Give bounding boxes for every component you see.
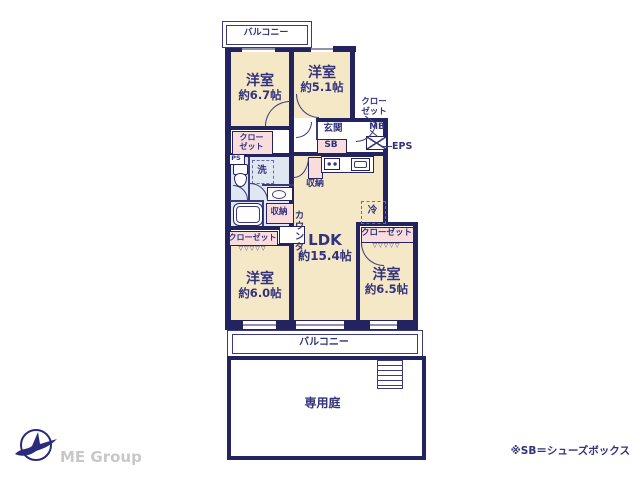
room-west-51-label: 洋室 約5.1帖: [294, 60, 350, 100]
bathtub-inner: [236, 206, 260, 223]
vanity-partition: [262, 184, 294, 186]
bathtub-icon: [233, 203, 263, 226]
shoe-box-label: SB: [317, 139, 345, 152]
garden-stairs: [377, 360, 403, 389]
room-west-65-name: 洋室: [373, 267, 401, 283]
kitchen-sink-icon: [351, 158, 370, 171]
room-west-67-label: 洋室 約6.7帖: [231, 68, 289, 108]
kitchen-sink-basin: [354, 161, 367, 168]
counter-label: カウンター: [290, 202, 304, 270]
room-west-60-name: 洋室: [246, 271, 274, 287]
storage-wet-label: 収納: [266, 203, 292, 222]
storage-hall-label: 収納: [300, 179, 330, 190]
window-top-51: [311, 46, 333, 52]
me-group-logo-svg: [12, 423, 60, 471]
balcony-top-label: バルコニー: [222, 21, 310, 46]
room-west-51-name: 洋室: [308, 65, 336, 81]
window-bottom-ldk: [296, 321, 344, 329]
me-group-text: ME Group: [60, 449, 152, 467]
closet-60-folding-door: ▽▽▽▽▽: [229, 246, 276, 252]
room-west-67-name: 洋室: [246, 73, 274, 89]
window-bottom-65: [370, 321, 397, 329]
wall-below-67: [225, 126, 294, 130]
meter-box-label: MB: [366, 122, 388, 133]
vanity-sink-icon: [267, 187, 293, 201]
room-ldk-name: LDK: [308, 232, 342, 249]
fridge-label: 冷: [361, 201, 384, 222]
closet-67-line1: クロー: [240, 133, 264, 142]
closet-67-line2: ゼット: [240, 142, 264, 151]
pipe-space-label: PS: [229, 154, 243, 163]
eps-label: EPS: [392, 141, 420, 153]
room-west-60-size: 約6.0帖: [238, 287, 281, 300]
washer-label: 洗: [252, 160, 272, 182]
room-west-65-size: 約6.5帖: [365, 283, 408, 296]
meter-box: [366, 136, 387, 150]
room-west-51-size: 約5.1帖: [300, 81, 343, 94]
room-west-60-label: 洋室 約6.0帖: [231, 266, 289, 306]
wall-right-upper: [350, 46, 355, 122]
room-west-67-size: 約6.7帖: [238, 89, 281, 102]
genkan-label: 玄関: [316, 124, 350, 135]
vanity-basin: [272, 190, 286, 199]
closet-65-label: クローゼット: [361, 227, 412, 241]
room-west-65-label: 洋室 約6.5帖: [360, 262, 413, 302]
eps-pointer: [383, 146, 392, 147]
closet-60-label: クローゼット: [229, 231, 276, 244]
balcony-bottom-label: バルコニー: [227, 330, 421, 356]
sb-note: ※SB＝シューズボックス: [440, 444, 630, 458]
me-group-logo: [12, 423, 60, 471]
window-bottom-60: [243, 321, 276, 329]
room-ldk-size: 約15.4帖: [298, 250, 352, 264]
stove-icon: [324, 158, 340, 170]
closet-67-label: クロー ゼット: [232, 131, 271, 153]
closet-genkan-label: クロー ゼット: [356, 97, 392, 118]
floorplan-image: バルコニー バルコニー 専用庭 クロー ゼット クローゼット ▽▽▽▽▽ クロー…: [0, 0, 640, 480]
